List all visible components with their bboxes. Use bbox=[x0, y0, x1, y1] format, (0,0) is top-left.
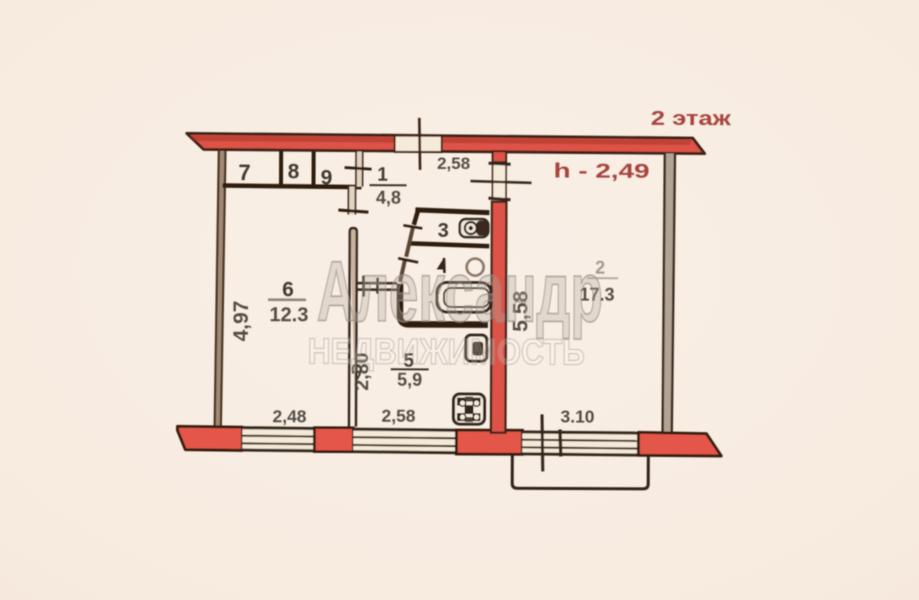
svg-text:2,48: 2,48 bbox=[272, 406, 306, 426]
svg-text:3: 3 bbox=[438, 220, 449, 242]
svg-text:5,9: 5,9 bbox=[397, 370, 422, 390]
svg-text:2,58: 2,58 bbox=[437, 154, 470, 173]
svg-text:8: 8 bbox=[288, 160, 300, 183]
svg-text:2 этаж: 2 этаж bbox=[651, 108, 732, 130]
svg-text:3.10: 3.10 bbox=[560, 406, 594, 426]
svg-text:1: 1 bbox=[377, 165, 388, 186]
svg-text:2,58: 2,58 bbox=[381, 406, 415, 426]
svg-text:4,8: 4,8 bbox=[376, 188, 401, 208]
svg-text:7: 7 bbox=[238, 160, 250, 185]
svg-text:h - 2,49: h - 2,49 bbox=[554, 160, 650, 182]
svg-text:6: 6 bbox=[282, 278, 294, 301]
svg-text:4,97: 4,97 bbox=[230, 301, 253, 342]
svg-text:Александр: Александр bbox=[317, 244, 603, 340]
svg-text:НЕДВИЖИМОСТЬ: НЕДВИЖИМОСТЬ bbox=[308, 330, 585, 372]
svg-text:12.3: 12.3 bbox=[269, 304, 308, 326]
svg-text:9: 9 bbox=[321, 166, 333, 189]
